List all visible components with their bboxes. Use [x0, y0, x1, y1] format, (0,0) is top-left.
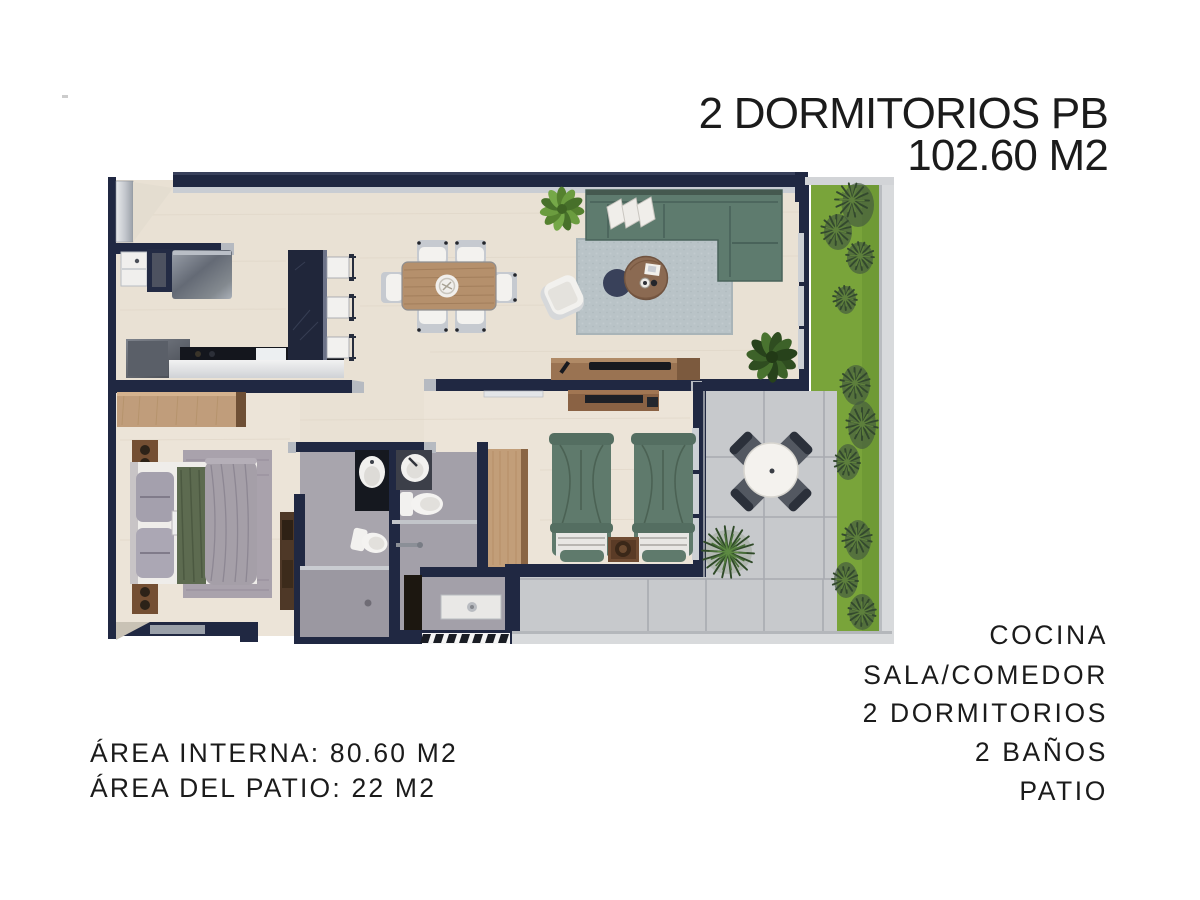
svg-text:ÁREA INTERNA: 80.60 M2: ÁREA INTERNA: 80.60 M2	[90, 738, 458, 768]
svg-text:102.60 M2: 102.60 M2	[907, 131, 1108, 180]
svg-text:COCINA: COCINA	[989, 620, 1108, 650]
svg-text:SALA/COMEDOR: SALA/COMEDOR	[863, 660, 1108, 690]
svg-text:ÁREA DEL PATIO: 22 M2: ÁREA DEL PATIO: 22 M2	[90, 773, 436, 803]
svg-text:PATIO: PATIO	[1019, 776, 1108, 806]
svg-text:2 BAÑOS: 2 BAÑOS	[975, 737, 1108, 767]
svg-text:2 DORMITORIOS: 2 DORMITORIOS	[863, 698, 1108, 728]
